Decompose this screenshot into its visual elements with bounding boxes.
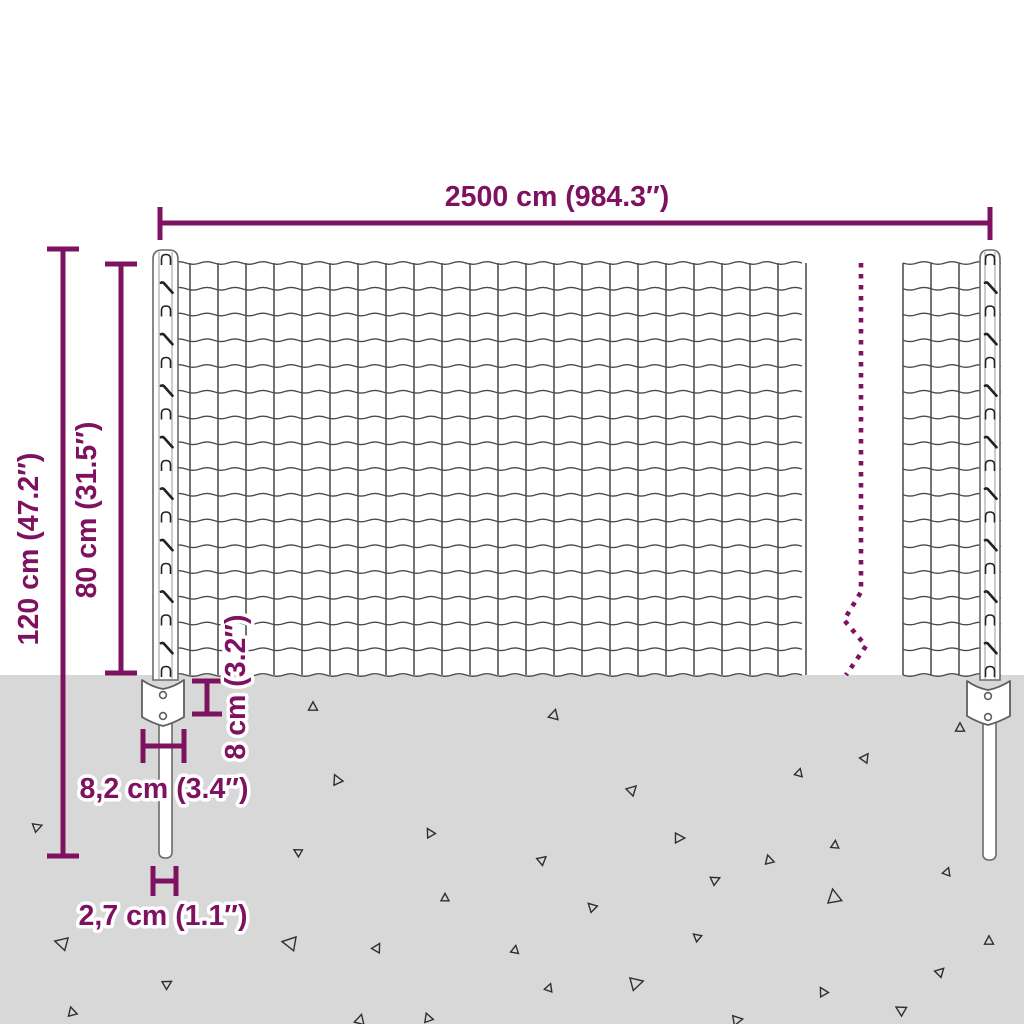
left-plate-hole [160, 713, 167, 720]
diagram-canvas: 2500 cm (984.3″) 120 cm (47.2″) 80 cm (3… [0, 0, 1024, 1024]
dimension-post-diameter-label: 2,7 cm (1.1″) [79, 900, 248, 932]
dimension-anchor-height-label: 8 cm (3.2″) [220, 614, 252, 759]
mesh-panel-left [158, 262, 806, 677]
dimension-width: 2500 cm (984.3″) [160, 181, 990, 240]
dimension-width-label: 2500 cm (984.3″) [445, 181, 669, 213]
dimension-anchor-width-label: 8,2 cm (3.4″) [80, 773, 249, 805]
right-plate-hole [985, 693, 992, 700]
right-plate-hole [985, 714, 992, 721]
mesh-clips [161, 255, 997, 678]
dimension-total-height-label: 120 cm (47.2″) [13, 453, 45, 646]
left-plate-hole [160, 692, 167, 699]
fence-dimension-diagram: 2500 cm (984.3″) 120 cm (47.2″) 80 cm (3… [0, 0, 1024, 1024]
ground-area [0, 675, 1024, 1024]
dimension-mesh-height: 80 cm (31.5″) [71, 264, 137, 673]
dimension-mesh-height-label: 80 cm (31.5″) [71, 422, 103, 599]
fence-break-dashed-line [844, 263, 866, 675]
right-post-below-ground [983, 722, 996, 860]
